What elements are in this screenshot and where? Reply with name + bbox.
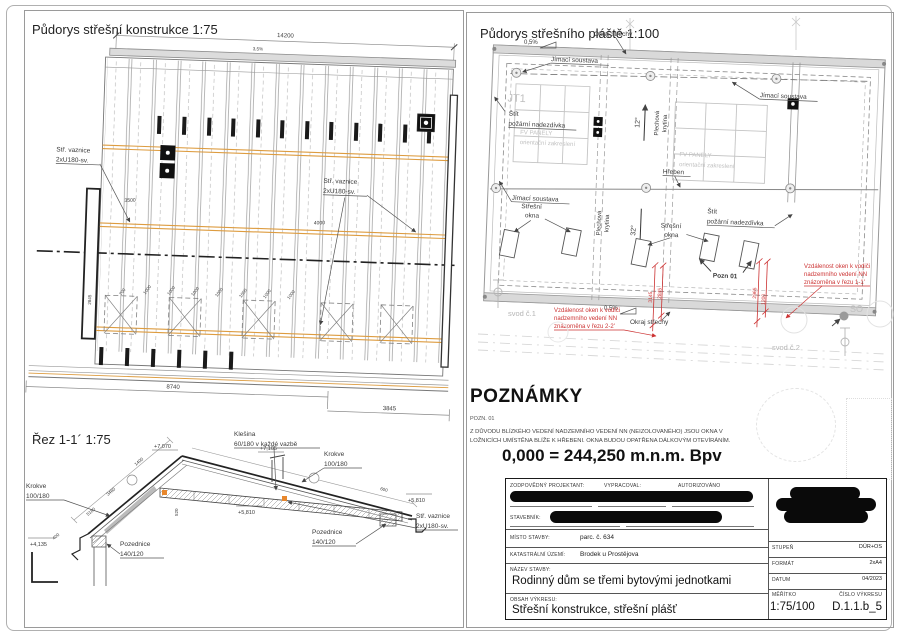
plan1-rotated-content: 14200 3,5% <box>25 25 462 422</box>
svg-text:100/180: 100/180 <box>324 461 348 468</box>
ref-circle-1 <box>127 475 137 485</box>
dim-top: 14200 <box>277 33 295 40</box>
red-dim-1200: 1200 <box>761 294 767 306</box>
katastr-label: KATASTRÁLNÍ ÚZEMÍ: <box>510 552 565 558</box>
cislo-value: D.1.1.b_5 <box>832 601 882 613</box>
svg-text:3500: 3500 <box>124 198 135 204</box>
svg-text:Střešní: Střešní <box>521 203 542 211</box>
dim-bottom2: 3845 <box>383 406 397 412</box>
cislo-label: ČÍSLO VÝKRESU <box>839 592 882 598</box>
svg-text:+5,810: +5,810 <box>238 510 255 516</box>
svg-text:+7,070: +7,070 <box>154 444 171 450</box>
chimney-stub <box>270 455 285 482</box>
section-title: Řez 1-1´ 1:75 <box>32 432 111 447</box>
stavebnik-label: STAVEBNÍK: <box>510 515 541 521</box>
chimney-right <box>417 114 435 132</box>
svg-text:znázorněna v řezu 1-1': znázorněna v řezu 1-1' <box>804 280 865 286</box>
svg-text:Stř. vaznice: Stř. vaznice <box>323 178 358 186</box>
svg-text:Okraj střechy: Okraj střechy <box>594 31 633 38</box>
krokve-label-left: Krokve 100/180 <box>26 483 110 516</box>
svg-text:Štít: Štít <box>707 206 717 215</box>
svg-text:znázorněna v řezu 2-2': znázorněna v řezu 2-2' <box>554 324 615 330</box>
svod2-symbol <box>840 328 850 356</box>
pv-label2a: FV PANELY <box>679 152 711 159</box>
red-dim-2965: 2965 <box>752 287 758 299</box>
dim-520: 520 <box>174 508 179 516</box>
svg-text:okna: okna <box>664 232 679 240</box>
redaction-names <box>510 491 753 502</box>
svg-text:60/180 v každé vazbě: 60/180 v každé vazbě <box>234 441 298 448</box>
logo-redaction-3 <box>784 510 868 523</box>
katastr-value: Brodek u Prostějova <box>580 551 639 558</box>
datum-label: DATUM <box>772 577 790 583</box>
so-arrow <box>832 319 840 326</box>
so-corner-point <box>840 312 849 321</box>
misto-label: MÍSTO STAVBY: <box>510 535 550 541</box>
stamp-placeholder-circle <box>756 388 836 462</box>
plech-label1b: krytina <box>662 114 669 133</box>
slope-triangle-bottom <box>620 308 636 314</box>
svod2-label: svod č.2 <box>772 343 800 352</box>
dim-600: 600 <box>380 486 389 493</box>
svg-text:Hřeben: Hřeben <box>663 168 685 176</box>
pozednice-label-center: Pozednice 140/120 <box>107 541 164 558</box>
red-dim-2845: 2845 <box>657 288 663 300</box>
svg-text:2845: 2845 <box>87 294 92 305</box>
section-1-1: Řez 1-1´ 1:75 3460 1400 5180 400 600 520 <box>24 424 462 626</box>
notes-heading: POZNÁMKY <box>470 386 810 408</box>
pozednice-label-right: Pozednice 140/120 <box>312 524 386 546</box>
svg-text:+5,810: +5,810 <box>408 498 425 504</box>
obsah-value: Střešní konstrukce, střešní plášť <box>512 604 677 616</box>
jt1-label: JT1 <box>507 92 526 105</box>
svod1-label: svod č.1 <box>508 309 536 318</box>
svg-text:Střešní: Střešní <box>661 222 682 230</box>
plech-label1a: Plechová <box>654 110 661 136</box>
purlin-marker-2 <box>282 496 287 501</box>
deg32-label: 32° <box>629 225 637 236</box>
svg-text:okna: okna <box>525 212 540 220</box>
stupen-value: DÚR+OS <box>859 544 882 550</box>
svg-text:140/120: 140/120 <box>312 539 336 546</box>
left-slope <box>88 456 187 543</box>
bottom-dims <box>25 380 450 421</box>
nazev-label: NÁZEV STAVBY: <box>510 567 551 573</box>
datum-value: 04/2023 <box>862 576 882 582</box>
dim-slope: 3,5% <box>253 46 263 51</box>
svg-text:2xU180-sv.: 2xU180-sv. <box>416 523 449 530</box>
svg-text:Krokve: Krokve <box>26 483 47 490</box>
stupen-label: STUPEŇ <box>772 545 793 551</box>
roof-construction-plan: Půdorys střešní konstrukce 1:75 14200 3,… <box>24 10 462 422</box>
dim-1400: 1400 <box>133 456 144 467</box>
svg-text:Vzdálenost oken k vodiči: Vzdálenost oken k vodiči <box>804 264 870 270</box>
meritko-label: MĚŘÍTKO <box>772 592 796 598</box>
stamp-placeholder-rect <box>846 398 892 480</box>
svg-text:4000: 4000 <box>314 220 325 226</box>
svg-text:Pozednice: Pozednice <box>120 541 151 548</box>
svg-text:Okraj střechy: Okraj střechy <box>630 319 669 326</box>
datum-elevation: 0,000 = 244,250 m.n.m. Bpv <box>502 446 722 466</box>
roof-cladding-plan: Půdorys střešního pláště 1:100 <box>466 12 892 386</box>
svg-text:100/180: 100/180 <box>26 493 50 500</box>
svg-text:Klešina: Klešina <box>234 431 256 438</box>
svg-text:Pozednice: Pozednice <box>312 529 343 536</box>
svg-text:Stř. vaznice: Stř. vaznice <box>416 513 450 520</box>
plech-label2a: Plechová <box>596 210 603 236</box>
obsah-label: OBSAH VÝKRESU: <box>510 597 557 603</box>
plech-label2b: krytina <box>604 214 611 233</box>
meritko-value: 1:75/100 <box>770 601 815 613</box>
svg-text:nadzemního vedení NN: nadzemního vedení NN <box>554 316 617 322</box>
format-value: 2xA4 <box>869 560 882 566</box>
pv-label1a: FV PANELY <box>520 130 552 137</box>
svg-text:+4,135: +4,135 <box>30 542 47 548</box>
svg-text:Stř. vaznice: Stř. vaznice <box>56 146 91 154</box>
format-label: FORMÁT <box>772 561 794 567</box>
redaction-stavebnik <box>550 511 722 523</box>
made-label: VYPRACOVAL: <box>604 483 641 489</box>
plan1-title: Půdorys střešní konstrukce 1:75 <box>32 22 218 37</box>
drawing-sheet: Půdorys střešní konstrukce 1:75 14200 3,… <box>0 0 900 637</box>
stit-label1a: Štít <box>509 109 519 118</box>
so-label: SO <box>850 304 863 314</box>
svg-text:nadzemního vedení NN: nadzemního vedení NN <box>804 272 867 278</box>
slope-top-label: 0,5% <box>524 40 538 46</box>
title-block: ZODPOVĚDNÝ PROJEKTANT: VYPRACOVAL: AUTOR… <box>505 478 887 620</box>
svg-text:Vzdálenost oken k vodiči: Vzdálenost oken k vodiči <box>554 308 620 314</box>
deg12-label: 12° <box>633 117 641 128</box>
dim-bottom1: 8740 <box>166 384 180 390</box>
nazev-value: Rodinný dům se třemi bytovými jednotkami <box>512 575 731 587</box>
misto-value: parc. č. 634 <box>580 534 614 541</box>
dim-400: 400 <box>51 532 60 541</box>
plan2-rotated-content: FV PANELY orientační zakreslení FV PANEL… <box>482 45 886 340</box>
red-dim-3145: 3145 <box>648 291 654 303</box>
svg-text:Pozn 01: Pozn 01 <box>713 272 738 280</box>
plan2-title: Půdorys střešního pláště 1:100 <box>480 26 659 41</box>
auth-label: AUTORIZOVÁNO <box>678 483 720 489</box>
dim-3460: 3460 <box>105 486 116 497</box>
resp-label: ZODPOVĚDNÝ PROJEKTANT: <box>510 483 584 489</box>
purlin-marker-1 <box>162 490 167 495</box>
svg-text:140/120: 140/120 <box>120 551 144 558</box>
svg-text:Krokve: Krokve <box>324 451 345 458</box>
